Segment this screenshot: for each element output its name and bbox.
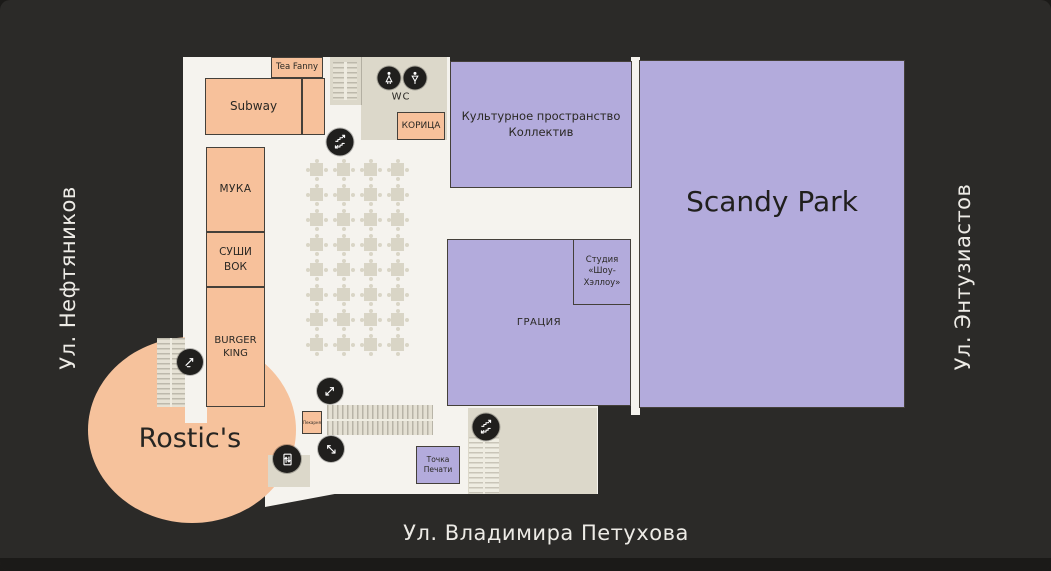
dining-table	[364, 313, 377, 326]
store-scandy-park[interactable]: Scandy Park	[639, 60, 905, 408]
store-label-studio-line2: «Шоу-Хэллоу»	[574, 266, 630, 289]
man-icon[interactable]	[404, 67, 427, 90]
dining-table	[310, 263, 323, 276]
dining-table	[337, 263, 350, 276]
chair-dots	[396, 193, 400, 197]
chair-dots	[342, 293, 346, 297]
chair-dots	[396, 343, 400, 347]
dining-table	[391, 313, 404, 326]
chair-dots	[342, 343, 346, 347]
store-label-muka: МУКА	[219, 182, 251, 196]
dining-table	[337, 188, 350, 201]
dining-table	[391, 263, 404, 276]
street-label-left: Ул. Нефтяников	[56, 186, 80, 369]
dining-table	[337, 213, 350, 226]
elevator-icon[interactable]	[273, 445, 301, 473]
chair-dots	[342, 243, 346, 247]
street-label-right: Ул. Энтузиастов	[951, 184, 975, 371]
stairs-icon[interactable]	[473, 414, 500, 441]
floor-bottom-edge	[265, 493, 340, 507]
map-bottom-edge	[0, 558, 1051, 571]
escalator-icon[interactable]	[177, 349, 203, 375]
wall-divider	[361, 57, 362, 105]
store-label-burger-king: BURGER KING	[207, 334, 264, 361]
dining-table	[310, 238, 323, 251]
dining-table	[337, 238, 350, 251]
dining-table	[364, 338, 377, 351]
floor-escalator-corridor	[185, 330, 207, 423]
chair-dots	[315, 168, 319, 172]
mall-map: Rostic's WC Tea Fanny Subway МУКА СУШИ В…	[0, 0, 1051, 571]
chair-dots	[369, 343, 373, 347]
chair-dots	[315, 193, 319, 197]
chair-dots	[396, 218, 400, 222]
escalator-bank-bottom	[327, 405, 433, 435]
store-subway[interactable]: Subway	[205, 78, 302, 135]
escalator-up-icon[interactable]	[317, 378, 343, 404]
dining-table	[310, 163, 323, 176]
store-label-rostics: Rostic's	[139, 421, 242, 457]
dining-table	[391, 338, 404, 351]
store-muka[interactable]: МУКА	[206, 147, 265, 232]
dining-table	[310, 313, 323, 326]
dining-table	[337, 288, 350, 301]
dining-table	[364, 213, 377, 226]
store-label-sushi-wok: СУШИ ВОК	[207, 245, 264, 273]
chair-dots	[396, 168, 400, 172]
chair-dots	[315, 293, 319, 297]
chair-dots	[315, 243, 319, 247]
chair-dots	[369, 243, 373, 247]
dining-table	[310, 213, 323, 226]
dining-table	[337, 313, 350, 326]
store-burger-king[interactable]: BURGER KING	[206, 287, 265, 407]
store-label-tea-fanny: Tea Fanny	[276, 62, 318, 73]
chair-dots	[369, 218, 373, 222]
store-label-studio: Студия «Шоу-Хэллоу»	[574, 255, 630, 289]
chair-dots	[315, 318, 319, 322]
store-bakery-kiosk[interactable]: Пекарня	[302, 411, 322, 434]
chair-dots	[396, 243, 400, 247]
dining-table	[364, 238, 377, 251]
dining-table	[364, 188, 377, 201]
store-label-bakery-kiosk: Пекарня	[303, 420, 321, 425]
chair-dots	[396, 293, 400, 297]
chair-dots	[342, 218, 346, 222]
stairs-top-block	[333, 62, 357, 100]
dining-table	[310, 338, 323, 351]
street-label-bottom: Ул. Владимира Петухова	[403, 521, 689, 545]
chair-dots	[369, 168, 373, 172]
store-unlabeled-unit[interactable]	[302, 78, 325, 135]
dining-table	[391, 188, 404, 201]
chair-dots	[369, 193, 373, 197]
chair-dots	[315, 343, 319, 347]
store-label-scandy-park: Scandy Park	[686, 183, 858, 221]
woman-icon[interactable]	[378, 67, 401, 90]
chair-dots	[342, 268, 346, 272]
dining-table	[391, 288, 404, 301]
dining-table	[364, 263, 377, 276]
dining-table	[364, 288, 377, 301]
store-label-kollektiv-line2: Коллектив	[462, 125, 621, 141]
dining-table	[310, 288, 323, 301]
escalator-down-icon[interactable]	[318, 436, 344, 462]
dining-table	[391, 213, 404, 226]
stairs-bottom-block	[469, 437, 499, 494]
store-studio-show-hello[interactable]: Студия «Шоу-Хэллоу»	[573, 239, 631, 305]
store-label-kollektiv: Культурное пространство Коллектив	[462, 109, 621, 140]
store-label-kollektiv-line1: Культурное пространство	[462, 109, 621, 125]
store-sushi-wok[interactable]: СУШИ ВОК	[206, 232, 265, 287]
floor-corridor-mid	[445, 188, 640, 239]
store-label-studio-line1: Студия	[574, 255, 630, 266]
dining-table	[391, 163, 404, 176]
chair-dots	[396, 268, 400, 272]
wc-label: WC	[392, 92, 411, 103]
dining-table	[337, 163, 350, 176]
food-court-tables	[310, 163, 418, 363]
store-label-graciya: ГРАЦИЯ	[517, 316, 561, 330]
store-tea-fanny[interactable]: Tea Fanny	[271, 57, 323, 78]
chair-dots	[369, 293, 373, 297]
chair-dots	[342, 318, 346, 322]
chair-dots	[396, 318, 400, 322]
chair-dots	[369, 318, 373, 322]
store-label-tochka-pechati: Точка Печати	[417, 455, 459, 475]
chair-dots	[369, 268, 373, 272]
stairs-icon[interactable]	[327, 129, 354, 156]
store-label-subway: Subway	[230, 98, 277, 114]
chair-dots	[315, 268, 319, 272]
dining-table	[310, 188, 323, 201]
store-label-koritsa: КОРИЦА	[402, 120, 441, 132]
chair-dots	[342, 193, 346, 197]
chair-dots	[342, 168, 346, 172]
store-kollektiv[interactable]: Культурное пространство Коллектив	[450, 61, 632, 188]
chair-dots	[315, 218, 319, 222]
dining-table	[391, 238, 404, 251]
dining-table	[337, 338, 350, 351]
store-tochka-pechati[interactable]: Точка Печати	[416, 446, 460, 484]
dining-table	[364, 163, 377, 176]
store-koritsa[interactable]: КОРИЦА	[397, 112, 445, 140]
escalator-bank-left	[157, 338, 185, 407]
